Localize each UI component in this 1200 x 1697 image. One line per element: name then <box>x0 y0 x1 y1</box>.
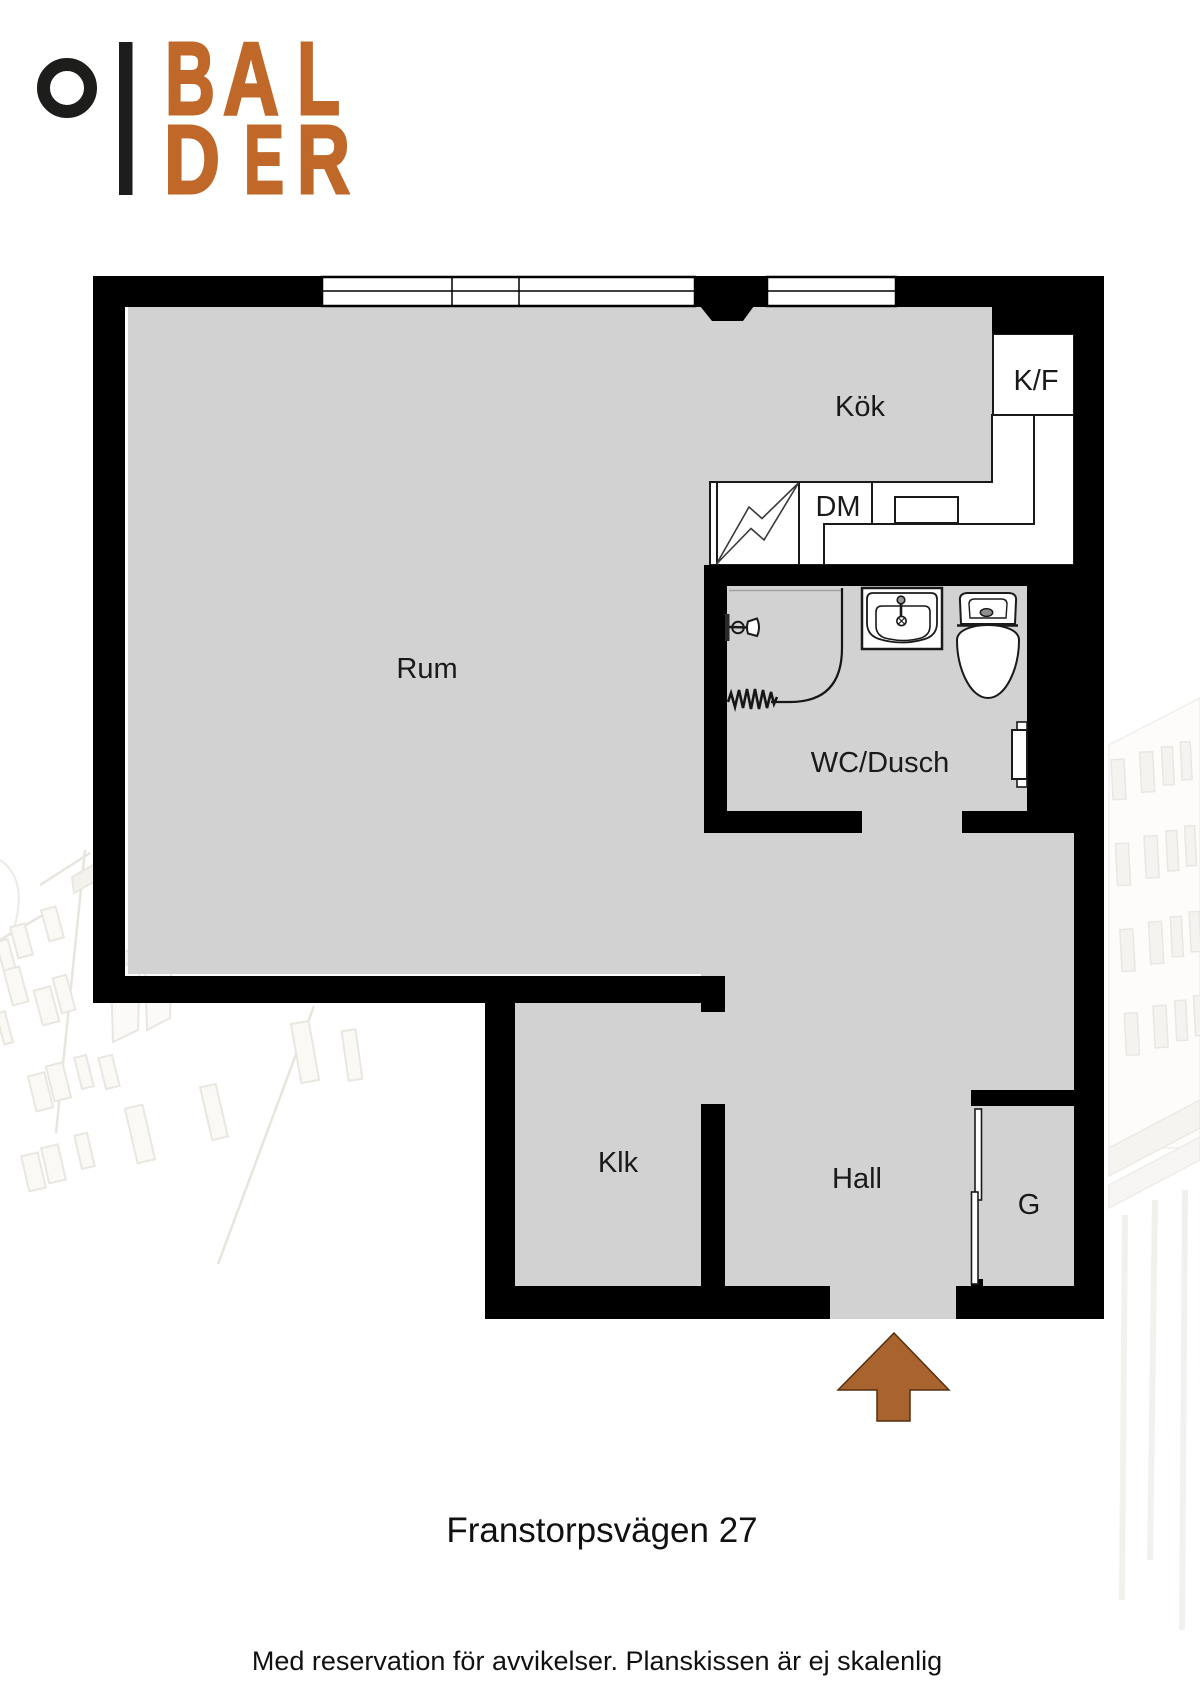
svg-text:Med reservation för avvikelser: Med reservation för avvikelser. Planskis… <box>252 1646 942 1676</box>
svg-text:E: E <box>244 105 284 214</box>
svg-text:R: R <box>297 105 350 214</box>
svg-text:D: D <box>164 105 220 214</box>
svg-text:WC/Dusch: WC/Dusch <box>811 747 950 779</box>
svg-text:K/F: K/F <box>1013 365 1058 397</box>
svg-text:Hall: Hall <box>832 1163 882 1195</box>
svg-text:Franstorpsvägen 27: Franstorpsvägen 27 <box>446 1511 757 1550</box>
svg-text:Rum: Rum <box>396 653 457 685</box>
svg-text:DM: DM <box>815 491 860 523</box>
svg-text:Kök: Kök <box>835 391 885 423</box>
svg-text:G: G <box>1018 1189 1041 1221</box>
svg-text:Klk: Klk <box>598 1147 639 1179</box>
